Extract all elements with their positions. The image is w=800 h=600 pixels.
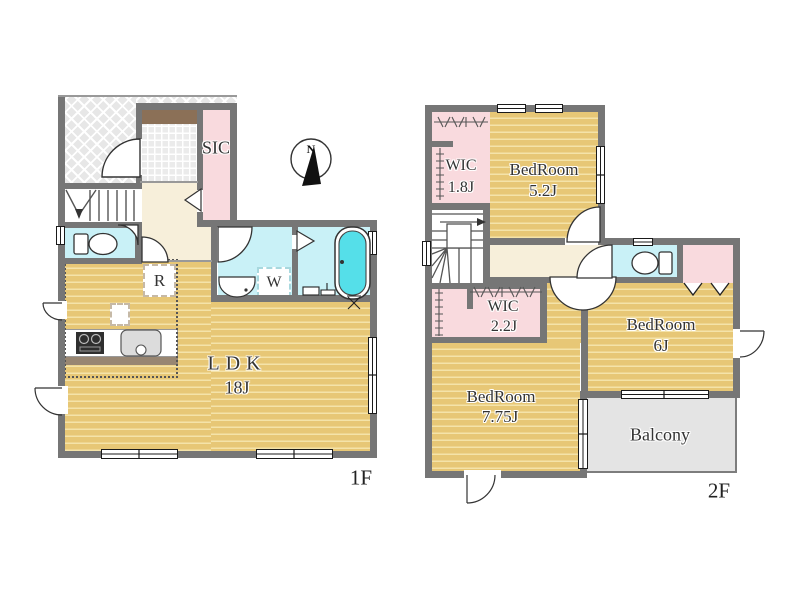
window xyxy=(422,241,431,266)
wall xyxy=(425,203,490,210)
kitchen-small-box xyxy=(110,303,130,326)
stairs-1f xyxy=(66,190,134,221)
window xyxy=(633,238,653,246)
hall-upper xyxy=(142,183,197,222)
window xyxy=(101,449,178,459)
bathroom xyxy=(298,227,370,295)
genkan-step-line xyxy=(140,181,198,183)
wall xyxy=(136,103,237,110)
door-opening xyxy=(464,470,501,479)
sic-label: SIC xyxy=(202,138,230,159)
wall xyxy=(598,238,740,245)
wall xyxy=(425,141,453,147)
ldk-name-label: LDK xyxy=(207,353,266,376)
porch-edge-line xyxy=(58,95,237,97)
wall xyxy=(605,272,612,283)
window xyxy=(256,449,333,459)
wall xyxy=(58,183,142,189)
ldk-size-label: 18J xyxy=(224,378,249,399)
toilet-room-1f xyxy=(65,228,135,258)
opening-line xyxy=(142,260,212,262)
window xyxy=(497,104,526,113)
door-opening xyxy=(733,329,742,358)
refrigerator-label: R xyxy=(154,271,165,291)
bedroom-52-size-label: 5.2J xyxy=(529,181,557,201)
wall xyxy=(58,222,142,228)
bedroom-52-name-label: BedRoom xyxy=(510,160,579,180)
bedroom-6-name-label: BedRoom xyxy=(627,315,696,335)
wall xyxy=(540,283,547,343)
door-opening xyxy=(56,386,68,414)
wall xyxy=(425,105,432,478)
bedroom-775-exterior-door-arc xyxy=(467,475,495,503)
wall xyxy=(58,258,142,264)
stairs-2f xyxy=(432,214,486,283)
genkan-step xyxy=(140,110,198,124)
wic-22-room xyxy=(432,289,540,337)
wall xyxy=(581,277,588,391)
ldk-floor-right xyxy=(211,302,370,451)
wall xyxy=(136,110,142,139)
wall xyxy=(197,220,377,227)
window xyxy=(596,146,605,204)
floor2-label: 2F xyxy=(708,479,730,504)
wall xyxy=(733,238,740,398)
wall xyxy=(292,227,298,235)
closet-2f xyxy=(683,245,733,283)
wall xyxy=(467,283,473,309)
washer-label: W xyxy=(266,274,281,292)
window xyxy=(56,226,65,245)
wall xyxy=(230,103,237,227)
window xyxy=(535,104,563,113)
wic-22-name-label: WIC xyxy=(487,298,518,316)
sic-room xyxy=(203,110,230,222)
wall xyxy=(612,277,683,283)
window xyxy=(621,390,709,399)
wall xyxy=(677,245,683,283)
wall xyxy=(211,295,377,302)
wall xyxy=(605,245,612,253)
floor-plan-canvas: R W SIC LDK 18J 1F xyxy=(0,0,800,600)
compass-icon: N xyxy=(291,139,331,186)
bedroom-775-floor-upper xyxy=(547,283,581,343)
bedroom-775-name-label: BedRoom xyxy=(467,387,536,407)
hall-lower xyxy=(142,222,211,262)
refrigerator-box: R xyxy=(143,264,176,297)
window xyxy=(368,231,377,255)
wic-18-name-label: WIC xyxy=(445,157,476,175)
bedroom-6-exterior-door-arc xyxy=(740,331,764,357)
bedroom-775-size-label: 7.75J xyxy=(482,407,518,427)
compass-north-label: N xyxy=(307,142,316,156)
wic-18-size-label: 1.8J xyxy=(448,179,474,197)
hall-2f xyxy=(490,245,612,277)
bedroom-6-size-label: 6J xyxy=(653,336,668,356)
wic-22-size-label: 2.2J xyxy=(491,318,517,336)
wall xyxy=(292,249,298,295)
balcony-label: Balcony xyxy=(630,425,690,446)
wall xyxy=(425,337,547,343)
entrance-porch xyxy=(58,97,136,183)
wall xyxy=(425,283,547,289)
door-opening xyxy=(136,139,142,175)
wall xyxy=(483,238,565,245)
window xyxy=(368,337,377,414)
balcony-door xyxy=(578,399,588,469)
window-opening xyxy=(56,301,67,319)
floor1-label: 1F xyxy=(350,466,372,491)
washer-box: W xyxy=(257,267,291,298)
wall xyxy=(425,471,587,478)
